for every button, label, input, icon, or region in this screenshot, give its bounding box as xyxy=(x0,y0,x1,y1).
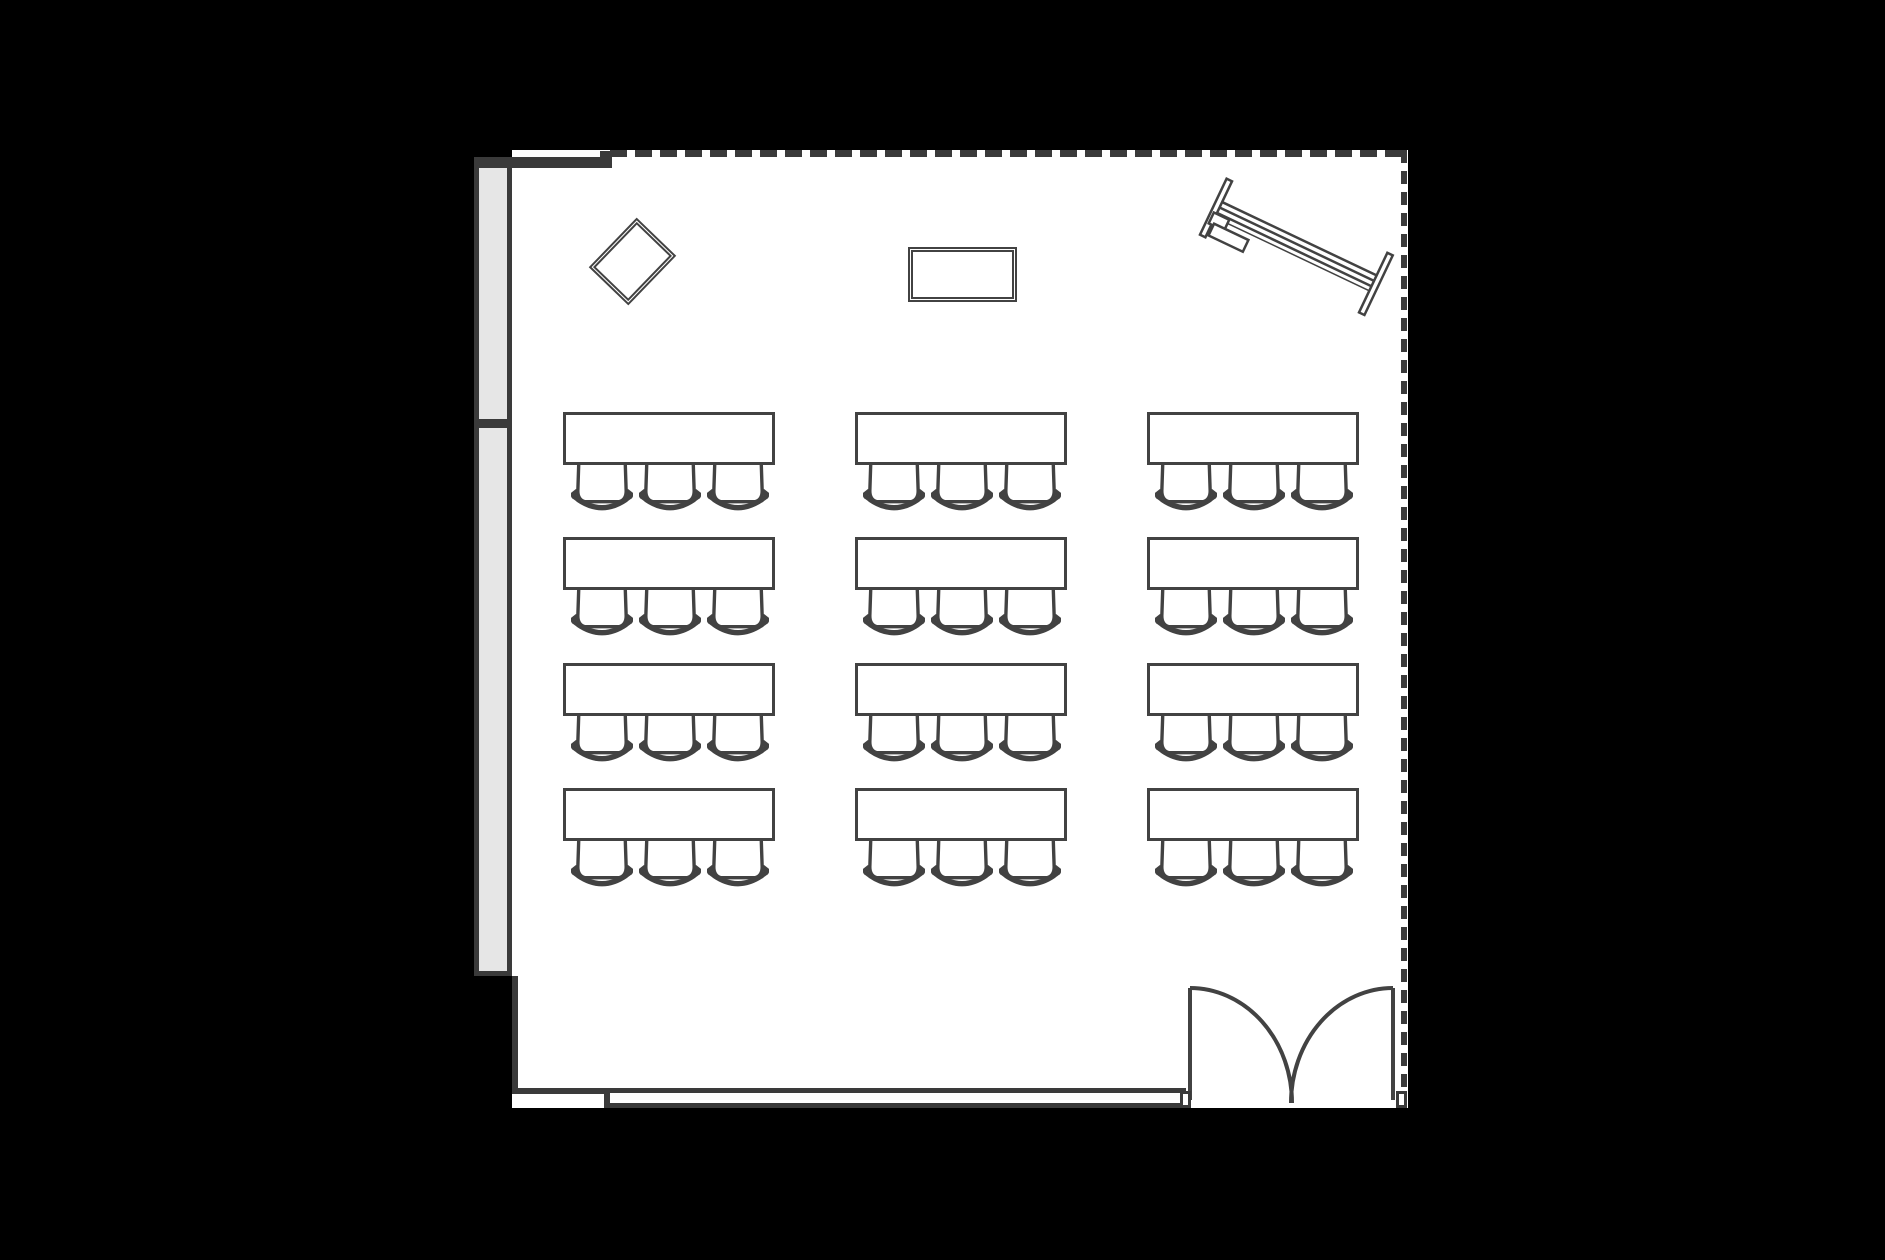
desk xyxy=(1147,788,1359,841)
chair-icon xyxy=(1223,713,1285,771)
chair-icon xyxy=(1223,462,1285,520)
chair-icon xyxy=(931,587,993,645)
wall-bottom-thin-segment xyxy=(512,1088,610,1094)
partition-wall-left xyxy=(474,157,512,976)
partition-wall-divider xyxy=(474,419,512,428)
desk-group-r2-c3 xyxy=(1147,537,1359,647)
projection-screen-icon xyxy=(1195,160,1415,330)
chair-icon xyxy=(1291,713,1353,771)
door-jamb-right xyxy=(1396,1091,1407,1108)
desk xyxy=(855,537,1067,590)
chair-icon xyxy=(863,838,925,896)
desk-group-r3-c3 xyxy=(1147,663,1359,773)
chair-icon xyxy=(863,462,925,520)
chair-icon xyxy=(1291,462,1353,520)
chair-icon xyxy=(1223,838,1285,896)
chair-icon xyxy=(999,587,1061,645)
desk xyxy=(855,412,1067,465)
chair-icon xyxy=(639,713,701,771)
desk-group-r1-c1 xyxy=(563,412,775,522)
chair-icon xyxy=(1155,462,1217,520)
desk-group-r2-c2 xyxy=(855,537,1067,647)
desk xyxy=(563,537,775,590)
chair-icon xyxy=(707,713,769,771)
chair-icon xyxy=(571,462,633,520)
desk xyxy=(855,788,1067,841)
desk-group-r4-c1 xyxy=(563,788,775,898)
floor-plan-canvas xyxy=(0,0,1885,1260)
desk-group-r3-c2 xyxy=(855,663,1067,773)
chair-icon xyxy=(1291,838,1353,896)
desk-group-r1-c2 xyxy=(855,412,1067,522)
chair-icon xyxy=(1291,587,1353,645)
desk xyxy=(563,663,775,716)
chair-icon xyxy=(863,713,925,771)
chair-icon xyxy=(707,838,769,896)
chair-icon xyxy=(1155,713,1217,771)
desk xyxy=(1147,663,1359,716)
desk-group-r3-c1 xyxy=(563,663,775,773)
chair-icon xyxy=(931,713,993,771)
chair-icon xyxy=(707,587,769,645)
chair-icon xyxy=(1155,587,1217,645)
chair-icon xyxy=(707,462,769,520)
presentation-board-icon xyxy=(908,247,1017,302)
desk xyxy=(1147,537,1359,590)
wall-left-lower-segment xyxy=(512,976,518,1093)
chair-icon xyxy=(571,838,633,896)
double-door-icon xyxy=(1180,980,1410,1110)
chair-icon xyxy=(639,838,701,896)
door-jamb-left xyxy=(1180,1091,1191,1108)
wall-top-solid-segment xyxy=(474,157,602,168)
chair-icon xyxy=(863,587,925,645)
chair-icon xyxy=(571,713,633,771)
chair-icon xyxy=(931,838,993,896)
chair-icon xyxy=(639,587,701,645)
desk xyxy=(563,788,775,841)
chair-icon xyxy=(931,462,993,520)
chair-icon xyxy=(999,462,1061,520)
desk-group-r2-c1 xyxy=(563,537,775,647)
chair-icon xyxy=(1155,838,1217,896)
desk xyxy=(1147,412,1359,465)
desk-group-r4-c2 xyxy=(855,788,1067,898)
wall-bottom-band xyxy=(610,1088,1186,1108)
chair-icon xyxy=(571,587,633,645)
desk xyxy=(563,412,775,465)
chair-icon xyxy=(1223,587,1285,645)
chair-icon xyxy=(999,713,1061,771)
desk-group-r4-c3 xyxy=(1147,788,1359,898)
chair-icon xyxy=(639,462,701,520)
chair-icon xyxy=(999,838,1061,896)
desk-group-r1-c3 xyxy=(1147,412,1359,522)
desk xyxy=(855,663,1067,716)
wall-top-dashed xyxy=(610,150,1408,157)
